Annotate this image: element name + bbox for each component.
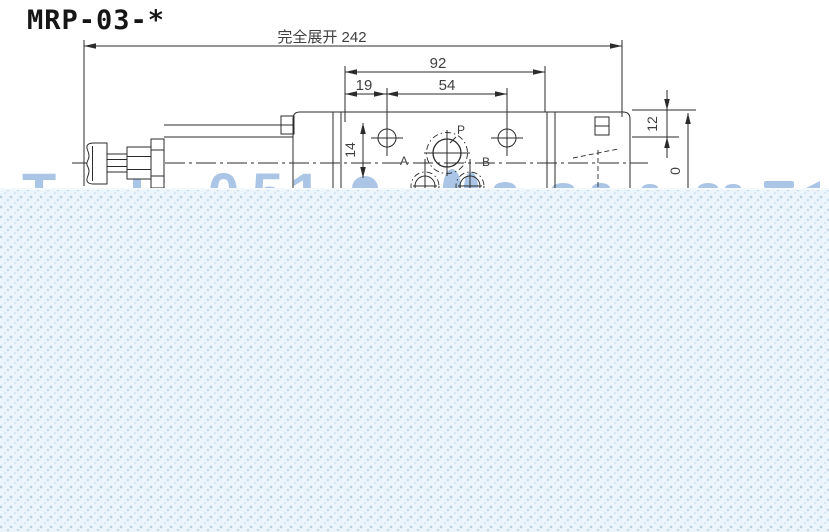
arrowhead	[374, 91, 386, 97]
port-a-label: A	[400, 154, 408, 168]
dim-partial-label: 0	[667, 167, 683, 175]
arrowhead	[386, 91, 398, 97]
arrowhead	[345, 69, 357, 75]
arrowhead	[533, 69, 545, 75]
port-p-label: P	[457, 123, 465, 137]
valve-drawing-page: MRP-03-* T 0 5 1	[0, 0, 829, 532]
arrowhead	[610, 43, 622, 49]
dim-12-label: 12	[644, 116, 660, 132]
arrowhead	[84, 43, 96, 49]
arrowhead	[664, 99, 670, 110]
watermark-glyph-fragment	[592, 183, 610, 188]
dim-overall-label: 完全展开 242	[277, 28, 366, 46]
dot-pattern-band	[0, 188, 829, 532]
arrowhead	[495, 91, 507, 97]
dim-14-label: 14	[342, 142, 358, 158]
watermark-glyph-fragment	[806, 181, 820, 188]
watermark-digit-1: 1	[290, 161, 321, 188]
watermark-glyph-fragment	[443, 169, 461, 188]
arrowhead	[360, 123, 366, 134]
dim-19-label: 19	[356, 77, 373, 94]
technical-drawing: T 0 5 1	[0, 0, 829, 188]
adjustment-knob	[87, 143, 107, 184]
hidden-line	[573, 149, 618, 158]
watermark-glyph-fragment	[352, 176, 378, 188]
arrowhead	[664, 137, 670, 148]
dim-92-label: 92	[430, 55, 447, 72]
lock-nut	[127, 147, 151, 179]
watermark-digit-5: 5	[252, 161, 283, 188]
watermark-letter-t: T	[22, 161, 56, 188]
knob-shaft	[107, 154, 127, 172]
watermark-glyph-fragment	[725, 184, 741, 188]
arrowhead	[685, 113, 691, 124]
watermark-glyph-fragment	[698, 183, 718, 188]
dim-54-label: 54	[439, 77, 456, 94]
watermark-digit-0: 0	[208, 161, 239, 188]
watermark-glyph-fragment	[494, 182, 516, 188]
watermark-glyph-fragment	[764, 181, 794, 188]
gland-sleeve	[151, 139, 164, 188]
watermark-glyph-fragment	[642, 184, 658, 188]
drawing-lines	[72, 40, 696, 188]
port-b-label: B	[482, 155, 490, 169]
